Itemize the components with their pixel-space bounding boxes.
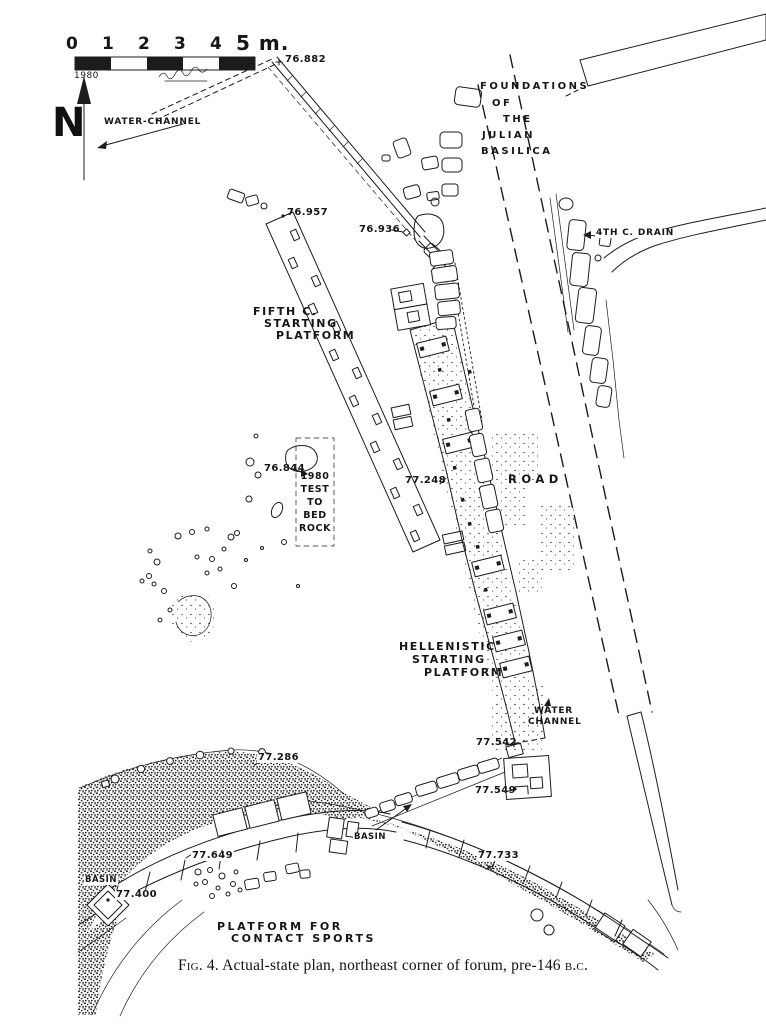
scale-tick-2: 2 bbox=[138, 36, 150, 53]
figure-page: 0 1 2 3 4 5 m. 1980 N WATER-CHANNEL 76.8… bbox=[0, 0, 766, 1024]
label-hellenistic-2: STARTING bbox=[412, 654, 486, 665]
label-test-pit-4: BED bbox=[295, 511, 335, 521]
scattered-stones-south bbox=[194, 863, 310, 899]
label-foundations-5: BASILICA bbox=[481, 147, 552, 157]
label-water-channel-bottom-2: CHANNEL bbox=[528, 718, 582, 727]
label-fifth-platform-1: FIFTH C. bbox=[253, 306, 318, 317]
elevation-77-286: 77.286 bbox=[257, 753, 300, 763]
elevation-77-248: 77.248 bbox=[405, 476, 446, 486]
southeast-wall-strip bbox=[627, 712, 681, 912]
label-foundations-3: THE bbox=[503, 115, 533, 125]
label-water-channel-top: WATER-CHANNEL bbox=[104, 118, 201, 127]
scale-tick-3: 3 bbox=[174, 36, 186, 53]
scale-tick-0: 0 bbox=[66, 36, 78, 53]
site-plan-drawing bbox=[0, 0, 766, 1024]
scale-year-label: 1980 bbox=[74, 72, 99, 81]
caption-era: b.c. bbox=[565, 957, 588, 974]
caption-text: 4. Actual-state plan, northeast corner o… bbox=[207, 957, 561, 974]
label-fourth-c-drain: 4TH C. DRAIN bbox=[595, 229, 675, 238]
label-foundations-4: JULIAN bbox=[482, 131, 535, 141]
label-road: ROAD bbox=[508, 474, 563, 486]
label-water-channel-bottom-1: WATER bbox=[534, 707, 573, 716]
caption-fig-label: Fig. bbox=[178, 957, 203, 974]
north-letter: N bbox=[52, 100, 85, 146]
elevation-76-882: 76.882 bbox=[285, 55, 326, 65]
label-fifth-platform-3: PLATFORM bbox=[276, 330, 355, 341]
elevation-77-542: 77.542 bbox=[476, 738, 517, 748]
elevation-77-400: 77.400 bbox=[115, 890, 158, 900]
scale-bar bbox=[75, 57, 255, 81]
label-fifth-platform-2: STARTING bbox=[264, 318, 338, 329]
pebble-field-west bbox=[140, 527, 300, 642]
scale-unit-label: 5 m. bbox=[236, 33, 289, 53]
fifth-c-starting-platform bbox=[266, 212, 440, 552]
elevation-77-733: 77.733 bbox=[477, 851, 520, 861]
label-basin-west: BASIN bbox=[84, 876, 118, 885]
figure-caption: Fig. 4. Actual-state plan, northeast cor… bbox=[0, 957, 766, 975]
scale-tick-1: 1 bbox=[102, 36, 114, 53]
label-foundations-2: OF bbox=[492, 99, 512, 109]
label-hellenistic-3: PLATFORM bbox=[424, 667, 503, 678]
elevation-76-957: 76.957 bbox=[287, 208, 328, 218]
elevation-76-936: 76.936 bbox=[359, 225, 400, 235]
label-test-pit-3: TO bbox=[295, 498, 335, 508]
label-contact-sports-1: PLATFORM FOR bbox=[217, 921, 343, 932]
label-test-pit-2: TEST bbox=[295, 485, 335, 495]
label-hellenistic-1: HELLENISTIC bbox=[399, 641, 496, 652]
elevation-77-649: 77.649 bbox=[191, 851, 234, 861]
label-contact-sports-2: CONTACT SPORTS bbox=[231, 933, 376, 944]
label-test-pit-1: 1980 bbox=[295, 472, 335, 482]
label-test-pit-5: ROCK bbox=[295, 524, 335, 534]
scale-tick-4: 4 bbox=[210, 36, 222, 53]
elevation-77-549: 77.549 bbox=[475, 786, 516, 796]
top-right-wall bbox=[566, 14, 766, 96]
label-basin-center: BASIN bbox=[353, 833, 387, 842]
label-foundations-1: FOUNDATIONS bbox=[480, 82, 589, 92]
